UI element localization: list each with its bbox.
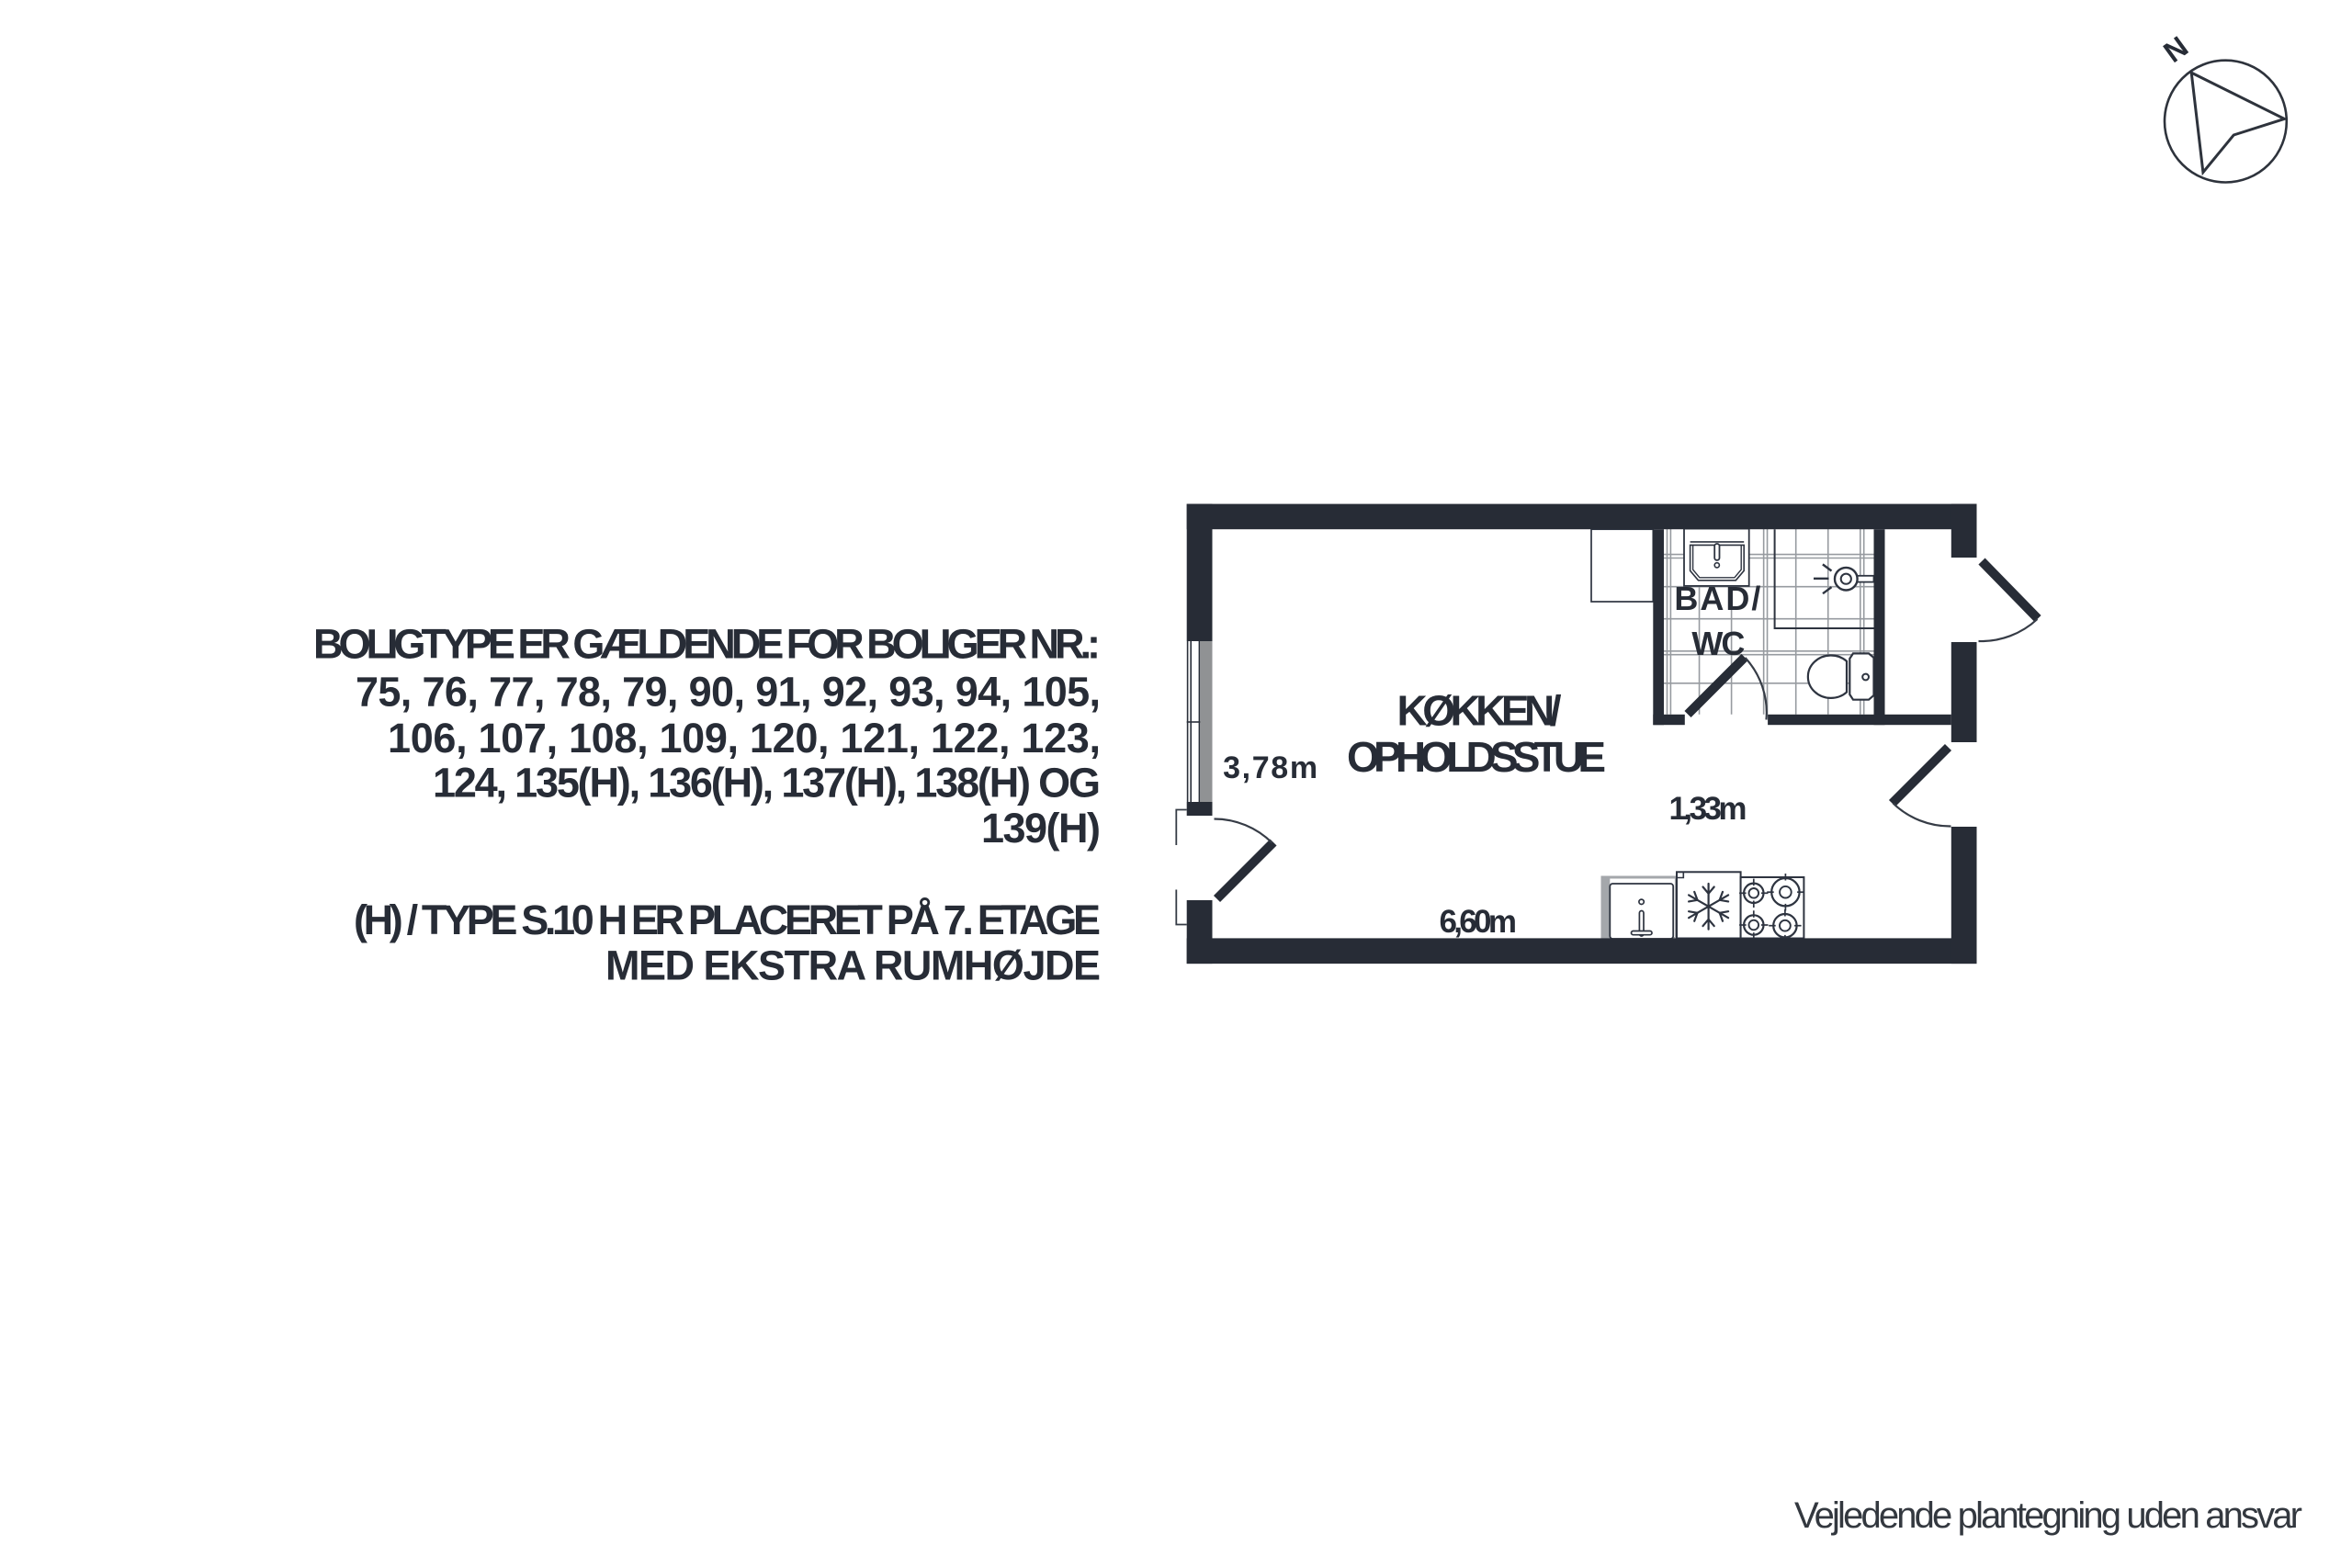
- svg-text:BAD/: BAD/: [1674, 580, 1760, 617]
- svg-text:106, 107, 108, 109, 120, 121,: 106, 107, 108, 109, 120, 121, 122, 123,: [388, 715, 1101, 761]
- svg-text:6,60m: 6,60m: [1439, 904, 1517, 940]
- svg-text:124, 135(H), 136(H), 137(H), 1: 124, 135(H), 136(H), 137(H), 138(H) OG: [433, 760, 1101, 807]
- svg-text:BOLIGTYPE ER GÆLDENDE FOR BOLI: BOLIGTYPE ER GÆLDENDE FOR BOLIGER NR.:: [313, 620, 1101, 667]
- svg-text:Vejledende plantegning uden an: Vejledende plantegning uden ansvar: [1794, 1495, 2302, 1536]
- svg-text:3,78m: 3,78m: [1223, 750, 1317, 785]
- svg-text:WC: WC: [1691, 625, 1745, 662]
- svg-text:139(H): 139(H): [981, 805, 1101, 852]
- svg-text:OPHOLDSSTUE: OPHOLDSSTUE: [1347, 733, 1606, 781]
- svg-text:1,33m: 1,33m: [1669, 791, 1747, 827]
- svg-text:N: N: [2157, 29, 2194, 69]
- svg-text:MED EKSTRA RUMHØJDE: MED EKSTRA RUMHØJDE: [605, 942, 1101, 989]
- svg-text:KØKKEN/: KØKKEN/: [1397, 686, 1562, 734]
- svg-text:(H) / TYPE S.10 H ER PLACERET: (H) / TYPE S.10 H ER PLACERET PÅ 7. ETAG…: [354, 897, 1101, 943]
- svg-text:75, 76, 77, 78, 79, 90, 91, 92: 75, 76, 77, 78, 79, 90, 91, 92, 93, 94, …: [356, 669, 1101, 716]
